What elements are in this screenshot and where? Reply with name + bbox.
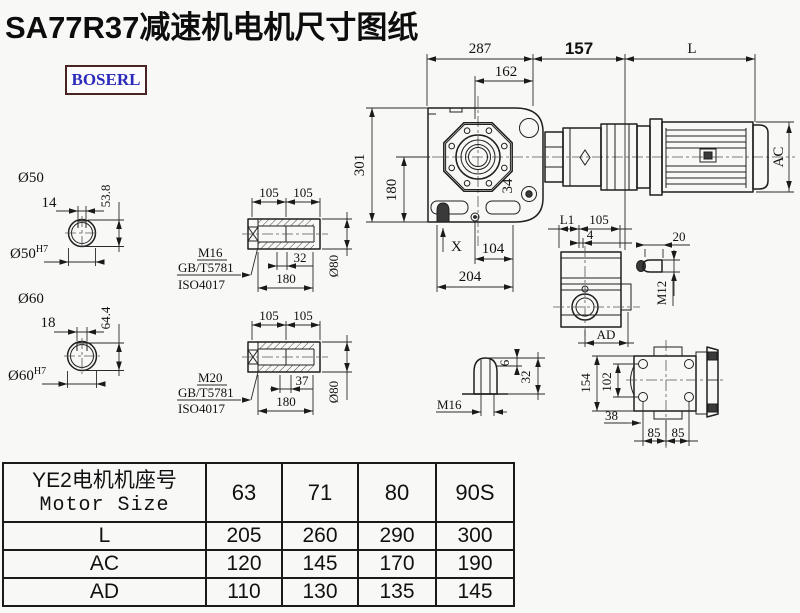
- dim-dia80b-label: Ø80: [326, 381, 341, 403]
- dim-162-label: 162: [495, 64, 518, 80]
- dim-20-label: 20: [673, 229, 686, 244]
- size-col-71: 71: [282, 463, 358, 522]
- dim-4-label: 4: [587, 227, 594, 242]
- thread-M12-label: M12: [654, 281, 669, 306]
- motor-dimension-table: YE2电机机座号 Motor Size 63 71 80 90S L 205 2…: [2, 462, 515, 607]
- bolt-b-label: M20: [198, 370, 223, 385]
- std-b1-label: GB/T5781: [178, 385, 234, 400]
- dim-34-label: 34: [500, 178, 516, 194]
- dim-154-label: 154: [578, 373, 593, 393]
- shaft-50-view: Ø50 14 53.8 Ø50H7: [10, 170, 124, 266]
- AC-90S: 190: [436, 550, 514, 578]
- dim-287-label: 287: [469, 41, 492, 57]
- dim-18-label: 18: [41, 315, 56, 331]
- gearbox-front-view: [428, 108, 543, 222]
- main-assembly-view: 287 162 157 L AC 301 180 34: [352, 39, 795, 292]
- bore-60-label: Ø60H7: [8, 366, 46, 384]
- dim-32-label: 32: [294, 250, 307, 265]
- size-col-63: 63: [206, 463, 282, 522]
- motor-size-header-cn: YE2电机机座号: [4, 468, 205, 494]
- hollow-shaft-b-view: 105 105 37 180 Ø80 M20 GB/T5781 ISO4017: [177, 308, 352, 416]
- thread-M16-label: M16: [437, 397, 462, 412]
- dim-AD-label: AD: [597, 327, 616, 342]
- dim-180-label: 180: [384, 179, 400, 202]
- shaft-60-view: Ø60 18 64.4 Ø60H7: [8, 291, 124, 388]
- motor-size-header: YE2电机机座号 Motor Size: [3, 463, 206, 522]
- row-AC-label: AC: [3, 550, 206, 578]
- dim-104-label: 104: [482, 241, 505, 257]
- hollow-shaft-a-view: 105 105 32 180 Ø80 M16 GB/T5781 ISO4017: [177, 185, 352, 292]
- dim-64.4-label: 64.4: [98, 306, 113, 329]
- L-80: 290: [358, 522, 436, 550]
- AC-71: 145: [282, 550, 358, 578]
- dim-AC-label: AC: [771, 147, 787, 168]
- AD-71: 130: [282, 578, 358, 606]
- vent-plug: [437, 203, 449, 222]
- bore-50-label: Ø50H7: [10, 244, 48, 262]
- dim-105a-label: 105: [259, 185, 279, 200]
- dim-180a-label: 180: [276, 271, 296, 286]
- size-col-90S: 90S: [436, 463, 514, 522]
- gearbox-side-view: L1 105 4 AD: [548, 212, 640, 347]
- mark-X-label: X: [451, 239, 462, 255]
- dim-14-label: 14: [42, 195, 58, 211]
- gearbox-rear-view: 154 102 38 85 85: [578, 340, 726, 448]
- dim-105s-label: 105: [589, 212, 609, 227]
- bolt-a-label: M16: [198, 245, 223, 260]
- motor-size-header-en: Motor Size: [4, 494, 205, 518]
- dim-38-label: 38: [605, 408, 618, 423]
- dim-L1-label: L1: [560, 212, 574, 227]
- dim-53.8-label: 53.8: [98, 185, 113, 208]
- dim-204-label: 204: [459, 269, 482, 285]
- std-b2-label: ISO4017: [178, 401, 225, 416]
- table-row-AD: AD 110 130 135 145: [3, 578, 514, 606]
- dim-dia80a-label: Ø80: [326, 255, 341, 277]
- technical-drawing: 287 162 157 L AC 301 180 34: [0, 0, 800, 462]
- std-a1-label: GB/T5781: [178, 260, 234, 275]
- row-L-label: L: [3, 522, 206, 550]
- key-detail-view: 20 M12: [636, 229, 690, 306]
- dim-157-label: 157: [565, 39, 593, 58]
- table-row-AC: AC 120 145 170 190: [3, 550, 514, 578]
- dim-102-label: 102: [599, 372, 614, 392]
- dim-37-label: 37: [296, 373, 310, 388]
- AD-90S: 145: [436, 578, 514, 606]
- drawing-sheet: SA77R37减速机电机尺寸图纸 BOSERL: [0, 0, 800, 613]
- shaft50-title: Ø50: [18, 170, 44, 186]
- L-63: 205: [206, 522, 282, 550]
- table-row-L: L 205 260 290 300: [3, 522, 514, 550]
- std-a2-label: ISO4017: [178, 277, 225, 292]
- dim-L-label: L: [687, 41, 696, 57]
- row-AD-label: AD: [3, 578, 206, 606]
- AC-63: 120: [206, 550, 282, 578]
- AD-80: 135: [358, 578, 436, 606]
- dim-105c-label: 105: [259, 308, 279, 323]
- dim-85b-label: 85: [672, 425, 685, 440]
- AC-80: 170: [358, 550, 436, 578]
- dim-105d-label: 105: [293, 308, 313, 323]
- dim-301-label: 301: [352, 154, 368, 177]
- dim-85a-label: 85: [648, 425, 661, 440]
- L-71: 260: [282, 522, 358, 550]
- dim-32p-label: 32: [518, 371, 533, 384]
- AD-63: 110: [206, 578, 282, 606]
- size-col-80: 80: [358, 463, 436, 522]
- dim-105b-label: 105: [293, 185, 313, 200]
- plug-detail-view: M16 6 32: [436, 349, 545, 416]
- dim-6-label: 6: [497, 359, 512, 366]
- table-header-row: YE2电机机座号 Motor Size 63 71 80 90S: [3, 463, 514, 522]
- drain-plug-symbol: [580, 150, 590, 165]
- L-90S: 300: [436, 522, 514, 550]
- shaft60-title: Ø60: [18, 291, 44, 307]
- dim-180b-label: 180: [276, 394, 296, 409]
